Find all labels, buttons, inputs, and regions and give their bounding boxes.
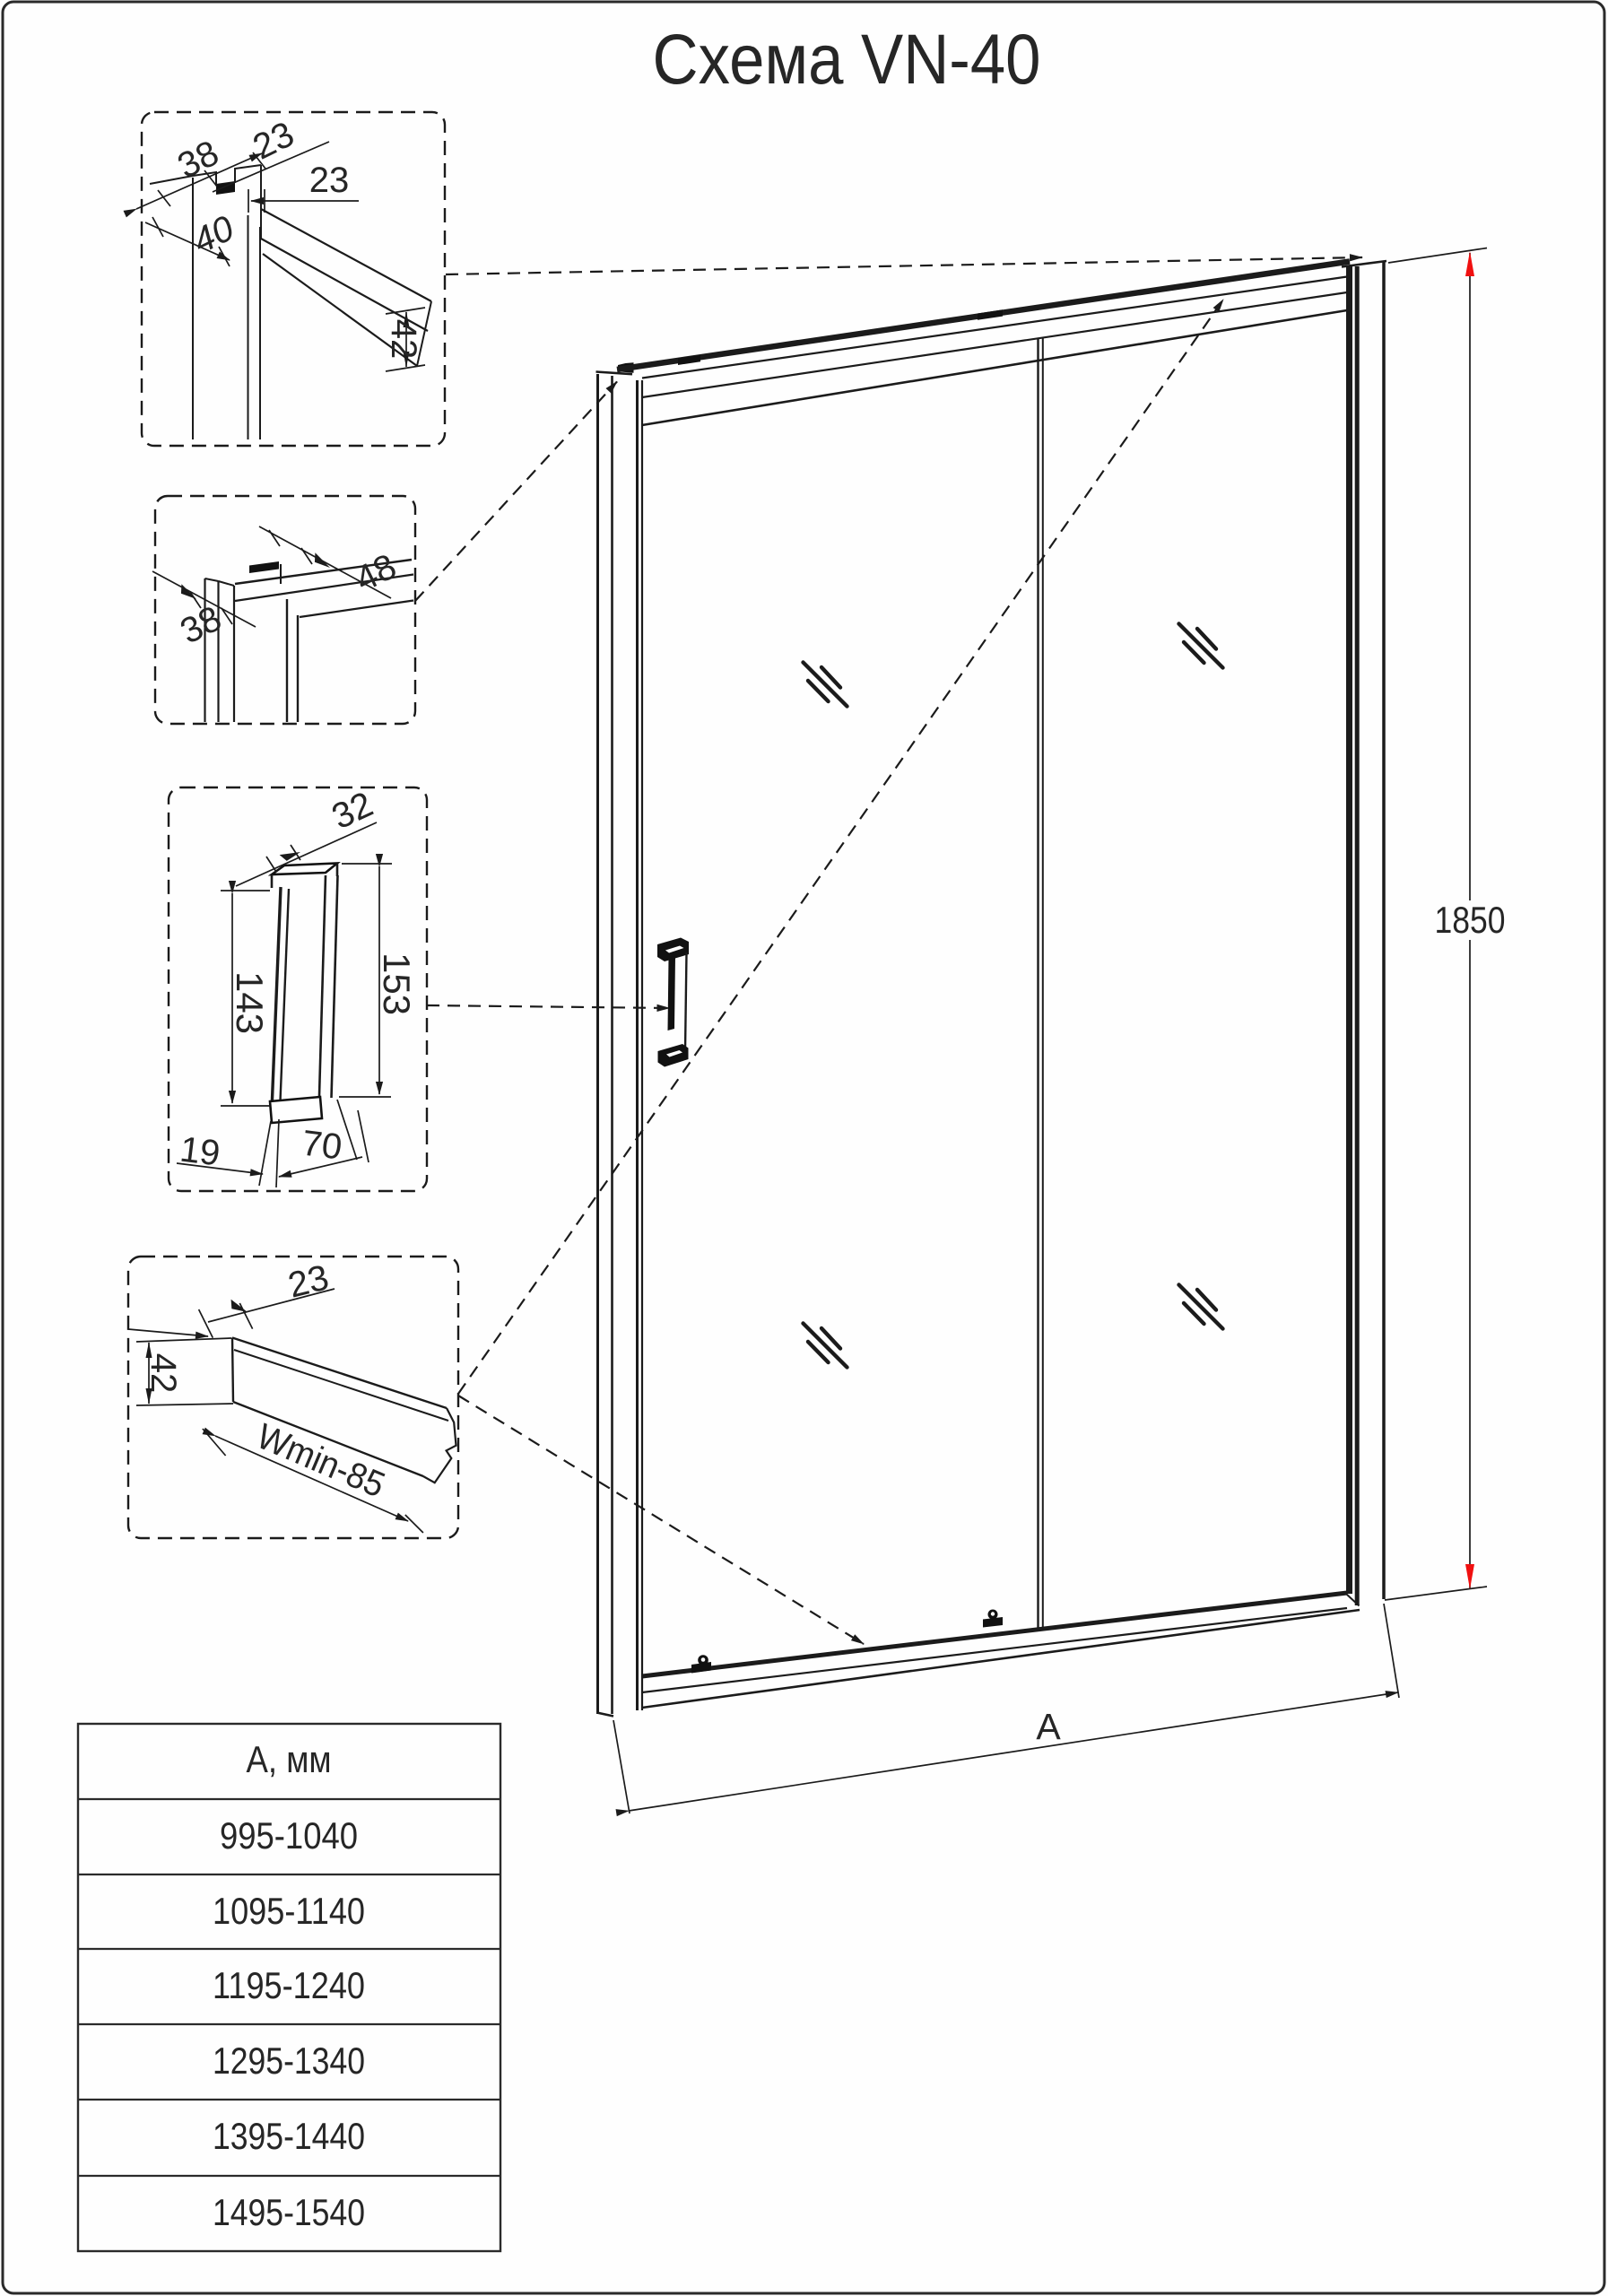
svg-text:1850: 1850 — [1435, 899, 1506, 941]
svg-text:143: 143 — [229, 971, 271, 1034]
svg-text:1095-1140: 1095-1140 — [213, 1890, 365, 1932]
svg-text:70: 70 — [300, 1123, 344, 1167]
svg-text:1195-1240: 1195-1240 — [213, 1964, 365, 2006]
svg-text:42: 42 — [384, 319, 423, 360]
svg-text:42: 42 — [143, 1353, 183, 1394]
svg-text:19: 19 — [178, 1129, 222, 1173]
svg-text:1295-1340: 1295-1340 — [213, 2039, 365, 2082]
svg-text:153: 153 — [376, 952, 418, 1015]
svg-text:23: 23 — [309, 161, 350, 200]
svg-text:A: A — [1036, 1706, 1061, 1747]
svg-text:Схема VN-40: Схема VN-40 — [653, 19, 1041, 99]
svg-text:995-1040: 995-1040 — [220, 1814, 358, 1857]
svg-text:А, мм: А, мм — [247, 1738, 332, 1780]
svg-text:1495-1540: 1495-1540 — [213, 2191, 365, 2233]
svg-text:1395-1440: 1395-1440 — [213, 2115, 365, 2157]
